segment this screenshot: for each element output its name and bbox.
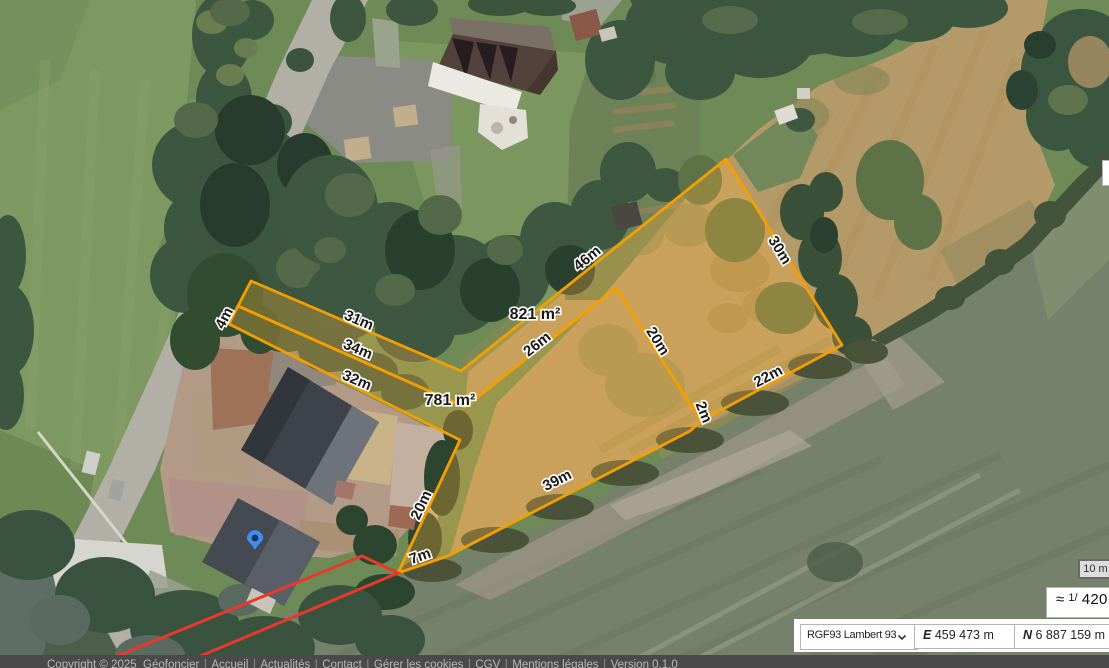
svg-text:781 m²: 781 m² [425,392,476,409]
svg-text:821 m²: 821 m² [510,306,561,323]
